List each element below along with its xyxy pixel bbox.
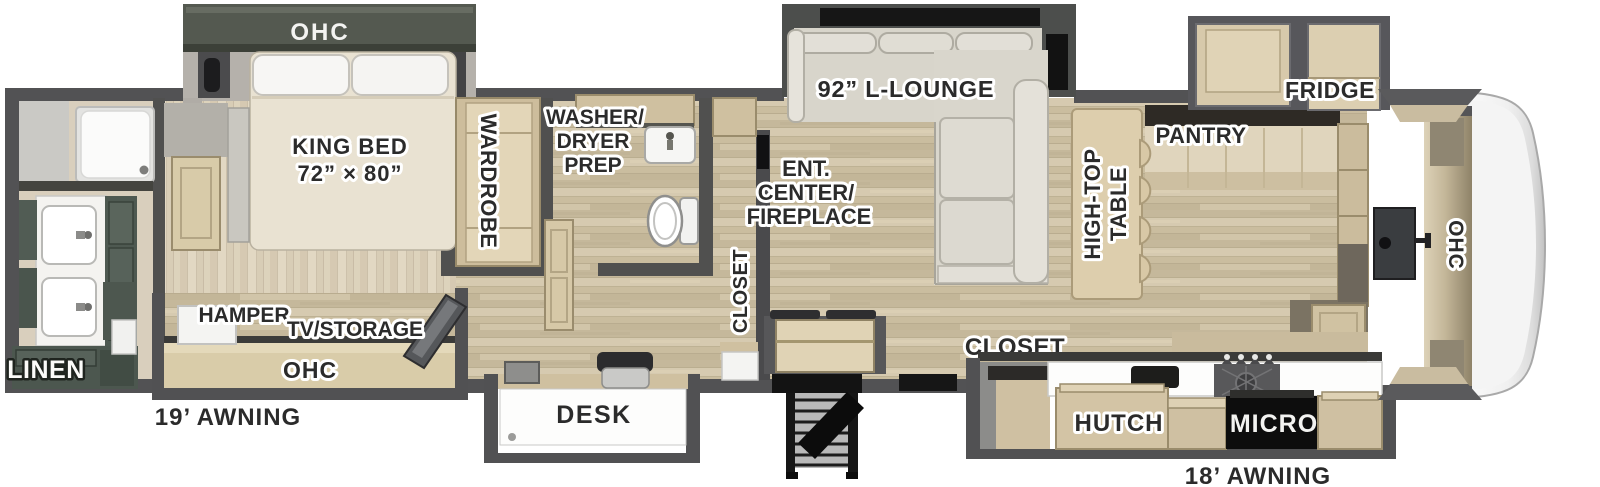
svg-text:ENT.: ENT.	[782, 156, 830, 181]
svg-text:MICRO: MICRO	[1230, 410, 1318, 438]
svg-text:LINEN: LINEN	[7, 356, 85, 384]
svg-text:HUTCH: HUTCH	[1075, 410, 1164, 437]
svg-text:KING BED: KING BED	[292, 134, 408, 159]
svg-text:DESK: DESK	[556, 401, 631, 429]
svg-text:TABLE: TABLE	[1106, 167, 1131, 241]
svg-text:OHC: OHC	[283, 357, 337, 383]
svg-text:WARDROBE: WARDROBE	[476, 114, 501, 249]
svg-text:WASHER/: WASHER/	[546, 106, 644, 129]
svg-text:HAMPER: HAMPER	[198, 304, 289, 327]
svg-text:92” L-LOUNGE: 92” L-LOUNGE	[818, 76, 995, 102]
svg-text:72” × 80”: 72” × 80”	[297, 161, 402, 186]
svg-text:19’ AWNING: 19’ AWNING	[155, 404, 301, 431]
svg-text:TV/STORAGE: TV/STORAGE	[287, 318, 423, 341]
svg-text:FIREPLACE: FIREPLACE	[747, 204, 872, 229]
svg-text:DRYER: DRYER	[557, 130, 630, 153]
svg-text:18’ AWNING: 18’ AWNING	[1185, 463, 1331, 487]
svg-text:FRIDGE: FRIDGE	[1285, 77, 1375, 103]
svg-text:OHC: OHC	[1444, 220, 1467, 270]
svg-text:CLOSET: CLOSET	[730, 249, 752, 333]
svg-text:PREP: PREP	[564, 154, 621, 177]
svg-text:OHC: OHC	[290, 19, 349, 46]
svg-text:HIGH-TOP: HIGH-TOP	[1080, 148, 1105, 259]
svg-text:CENTER/: CENTER/	[758, 180, 855, 205]
svg-text:PANTRY: PANTRY	[1156, 123, 1247, 148]
